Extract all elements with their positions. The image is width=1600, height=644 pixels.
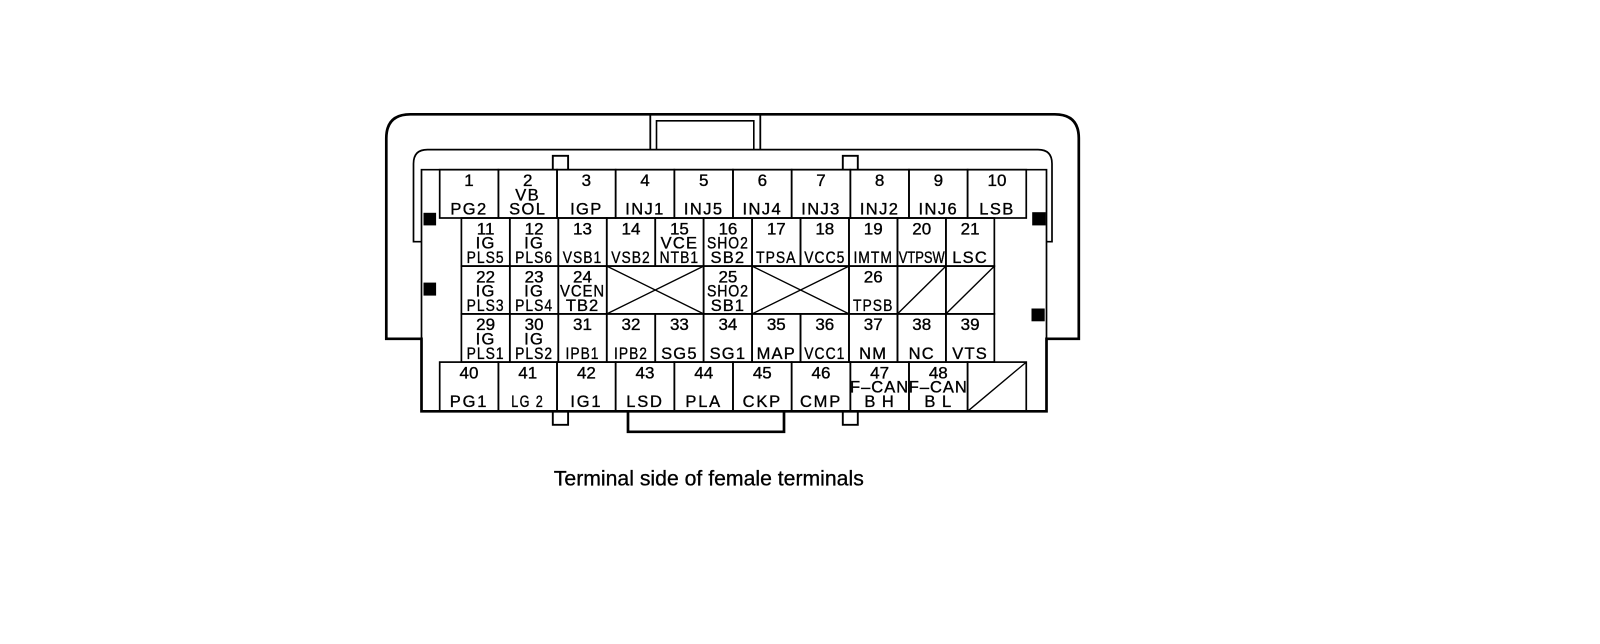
svg-text:LSC: LSC (952, 249, 988, 267)
svg-text:IPB2: IPB2 (614, 345, 648, 363)
svg-text:37: 37 (864, 315, 883, 334)
svg-text:PLA: PLA (685, 393, 722, 411)
svg-text:MAP: MAP (757, 345, 796, 363)
svg-text:31: 31 (573, 315, 592, 334)
svg-text:38: 38 (912, 315, 931, 334)
svg-text:VTPSW: VTPSW (899, 249, 945, 267)
svg-text:VCC1: VCC1 (804, 345, 845, 363)
svg-text:LSB: LSB (979, 201, 1014, 219)
svg-text:SG1: SG1 (710, 345, 747, 363)
svg-text:VSB2: VSB2 (611, 249, 651, 267)
svg-text:PLS1: PLS1 (467, 345, 505, 363)
svg-text:34: 34 (718, 315, 737, 334)
svg-text:19: 19 (864, 219, 883, 238)
svg-text:INJ5: INJ5 (684, 201, 724, 219)
svg-text:7: 7 (816, 171, 825, 190)
svg-text:B H: B H (864, 393, 895, 411)
svg-text:45: 45 (753, 363, 772, 382)
svg-text:NTB1: NTB1 (660, 249, 700, 267)
svg-text:8: 8 (875, 171, 884, 190)
svg-text:33: 33 (670, 315, 689, 334)
svg-text:VSB1: VSB1 (563, 249, 603, 267)
svg-text:INJ4: INJ4 (743, 201, 783, 219)
svg-text:SB1: SB1 (711, 297, 745, 315)
svg-text:VTS: VTS (952, 345, 988, 363)
svg-text:10: 10 (988, 171, 1007, 190)
svg-text:CMP: CMP (800, 393, 842, 411)
svg-text:SOL: SOL (509, 201, 546, 219)
svg-text:PLS3: PLS3 (467, 297, 505, 315)
svg-text:40: 40 (460, 363, 479, 382)
svg-text:PG1: PG1 (450, 393, 488, 411)
svg-text:B L: B L (924, 393, 952, 411)
svg-text:SG5: SG5 (661, 345, 698, 363)
svg-text:PLS5: PLS5 (467, 249, 505, 267)
svg-text:INJ6: INJ6 (919, 201, 959, 219)
svg-text:IPB1: IPB1 (566, 345, 600, 363)
svg-text:LG 2: LG 2 (511, 393, 544, 411)
svg-text:TPSA: TPSA (756, 249, 796, 267)
svg-text:20: 20 (912, 219, 931, 238)
svg-text:17: 17 (767, 219, 786, 238)
svg-text:26: 26 (864, 267, 883, 286)
svg-text:4: 4 (640, 171, 649, 190)
svg-text:INJ1: INJ1 (625, 201, 665, 219)
svg-text:21: 21 (961, 219, 980, 238)
svg-text:6: 6 (758, 171, 767, 190)
svg-text:18: 18 (815, 219, 834, 238)
svg-text:TPSB: TPSB (853, 297, 893, 315)
svg-text:TB2: TB2 (566, 297, 599, 315)
svg-text:IG1: IG1 (570, 393, 602, 411)
svg-text:42: 42 (577, 363, 596, 382)
svg-text:INJ2: INJ2 (860, 201, 900, 219)
svg-text:1: 1 (464, 171, 473, 190)
svg-text:IMTM: IMTM (853, 249, 893, 267)
svg-text:39: 39 (961, 315, 980, 334)
svg-text:Terminal side of female termin: Terminal side of female terminals (554, 468, 864, 491)
svg-text:PLS4: PLS4 (515, 297, 553, 315)
svg-text:5: 5 (699, 171, 708, 190)
svg-text:CKP: CKP (743, 393, 782, 411)
svg-text:VCC5: VCC5 (804, 249, 845, 267)
svg-text:13: 13 (573, 219, 592, 238)
svg-text:SB2: SB2 (711, 249, 746, 267)
svg-text:INJ3: INJ3 (801, 201, 841, 219)
svg-text:LSD: LSD (626, 393, 664, 411)
svg-text:44: 44 (694, 363, 713, 382)
svg-text:3: 3 (582, 171, 591, 190)
svg-text:IGP: IGP (570, 201, 603, 219)
svg-text:NM: NM (859, 345, 887, 363)
svg-text:32: 32 (622, 315, 641, 334)
svg-text:PLS2: PLS2 (515, 345, 553, 363)
svg-text:36: 36 (815, 315, 834, 334)
svg-text:9: 9 (934, 171, 943, 190)
svg-text:NC: NC (909, 345, 935, 363)
svg-text:35: 35 (767, 315, 786, 334)
svg-text:14: 14 (622, 219, 641, 238)
svg-text:43: 43 (636, 363, 655, 382)
svg-text:41: 41 (518, 363, 537, 382)
svg-text:46: 46 (812, 363, 831, 382)
svg-text:PG2: PG2 (450, 201, 487, 219)
svg-text:PLS6: PLS6 (515, 249, 553, 267)
